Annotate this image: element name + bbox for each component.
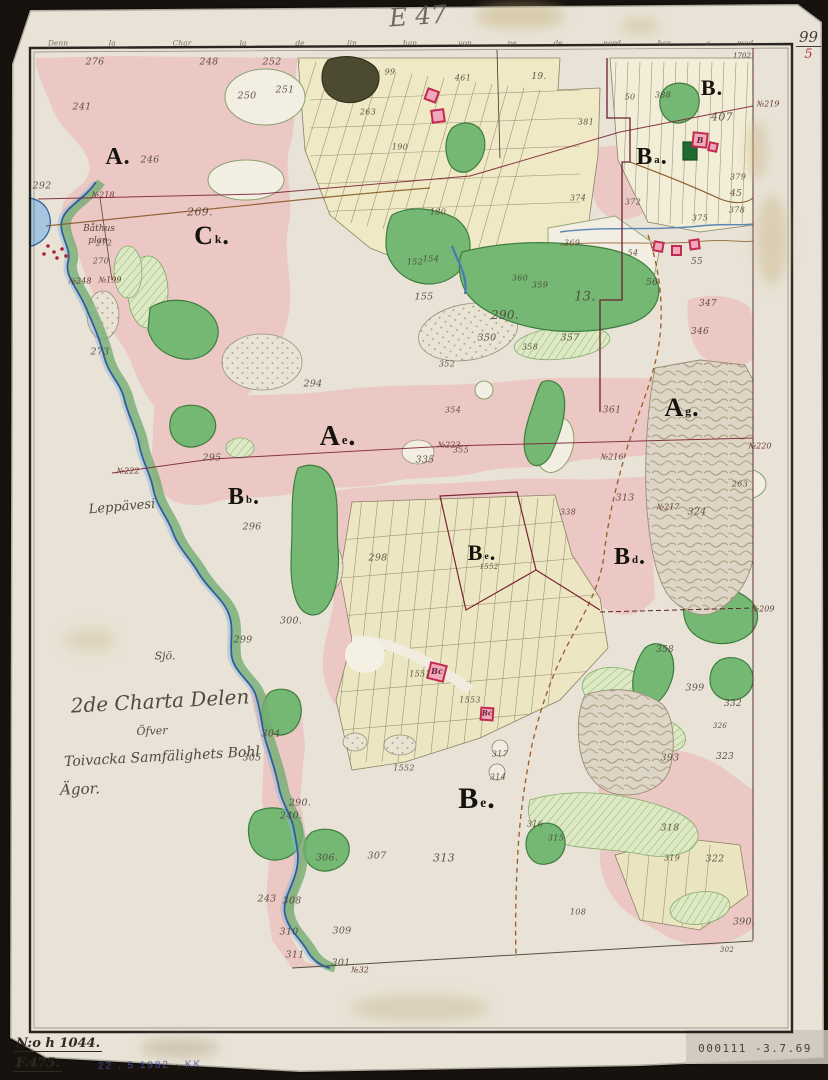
microfilm-stamp: 22 . 5 1982 · KK [98, 1059, 202, 1072]
archive-reference-block: N:o h 1044. F.475. [14, 1032, 102, 1072]
tree-clump [322, 57, 379, 103]
archive-code: F.475. [14, 1056, 62, 1072]
sheet-number-fraction: 99 5 [796, 28, 821, 62]
sheet-number-bottom: 5 [796, 47, 821, 62]
map-drawing [0, 0, 828, 1080]
archive-stamp-number: 000111 -3.7.69 [688, 1042, 822, 1055]
archive-number: N:o h 1044. [14, 1036, 102, 1052]
sheet-number-top: 99 [796, 28, 821, 47]
scanned-map-photo: A.Ck.B.Ba.Ae.Ag.Bb.Be.Bd.Be.276248252251… [0, 0, 828, 1080]
